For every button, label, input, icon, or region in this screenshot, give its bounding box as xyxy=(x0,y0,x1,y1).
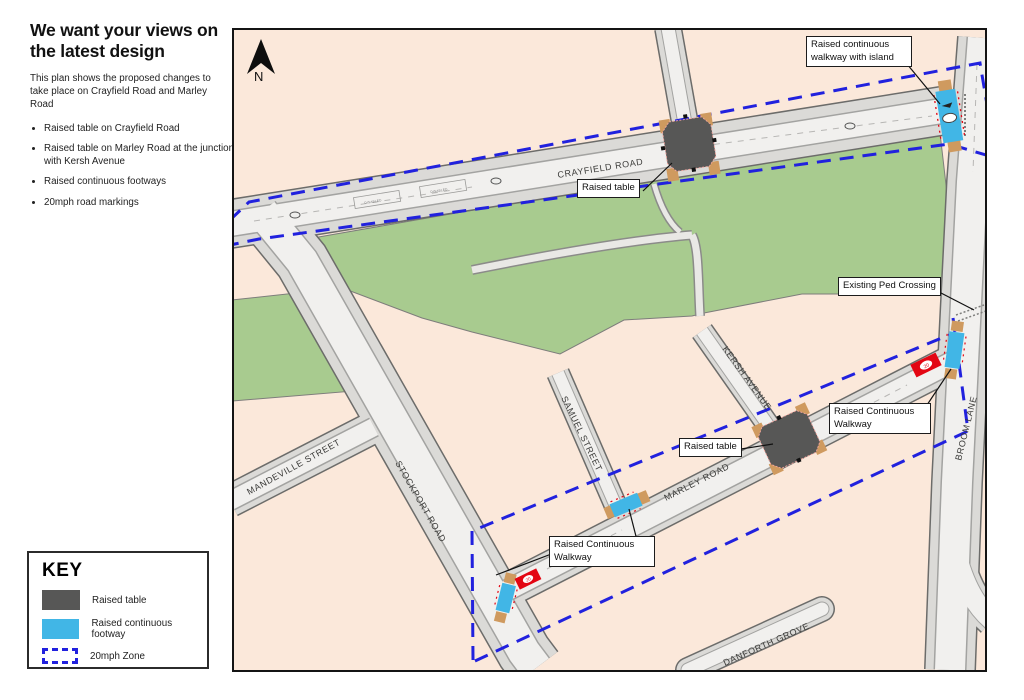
parking-roundel-icon xyxy=(845,123,855,129)
intro-panel: We want your views on the latest design … xyxy=(30,20,230,216)
raised-footway-swatch xyxy=(42,619,79,639)
key-item-label: Raised table xyxy=(92,595,146,606)
key-item-20mph-zone: 20mph Zone xyxy=(42,648,207,664)
parking-roundel-icon xyxy=(491,178,501,184)
key-item-label: 20mph Zone xyxy=(90,651,145,662)
north-arrow-icon: N xyxy=(247,39,275,84)
key-item-label: Raised continuous footway xyxy=(91,618,207,640)
proposal-item: 20mph road markings xyxy=(44,196,236,209)
key-item-raised-table: Raised table xyxy=(42,590,207,610)
parking-roundel-icon xyxy=(290,212,300,218)
proposal-item: Raised continuous footways xyxy=(44,175,236,188)
map-key: KEY Raised table Raised continuous footw… xyxy=(27,551,209,669)
callout-walkway-right: Raised Continuous Walkway xyxy=(829,403,931,434)
callout-walkway-bottom: Raised Continuous Walkway xyxy=(549,536,655,567)
map-canvas: DISABLED DISABLED xyxy=(234,30,985,670)
proposal-item: Raised table on Crayfield Road xyxy=(44,122,236,135)
zone-dash-swatch xyxy=(42,648,78,664)
callout-raised-table-marley: Raised table xyxy=(679,438,742,457)
callout-walkway-island: Raised continuous walkway with island xyxy=(806,36,912,67)
proposal-map[interactable]: DISABLED DISABLED xyxy=(232,28,987,672)
callout-existing-ped-crossing: Existing Ped Crossing xyxy=(838,277,941,296)
page-title: We want your views on the latest design xyxy=(30,20,230,62)
key-title: KEY xyxy=(42,560,207,582)
key-item-raised-footway: Raised continuous footway xyxy=(42,618,207,640)
intro-text: This plan shows the proposed changes to … xyxy=(30,72,228,112)
callout-raised-table-crayfield: Raised table xyxy=(577,179,640,198)
proposal-item: Raised table on Marley Road at the junct… xyxy=(44,142,236,168)
proposal-list: Raised table on Crayfield Road Raised ta… xyxy=(30,122,236,209)
north-label: N xyxy=(254,69,263,84)
consultation-plan-page: { "panel": { "title": "We want your view… xyxy=(0,0,1024,700)
road-surfaces xyxy=(234,30,985,670)
raised-table-swatch xyxy=(42,590,80,610)
